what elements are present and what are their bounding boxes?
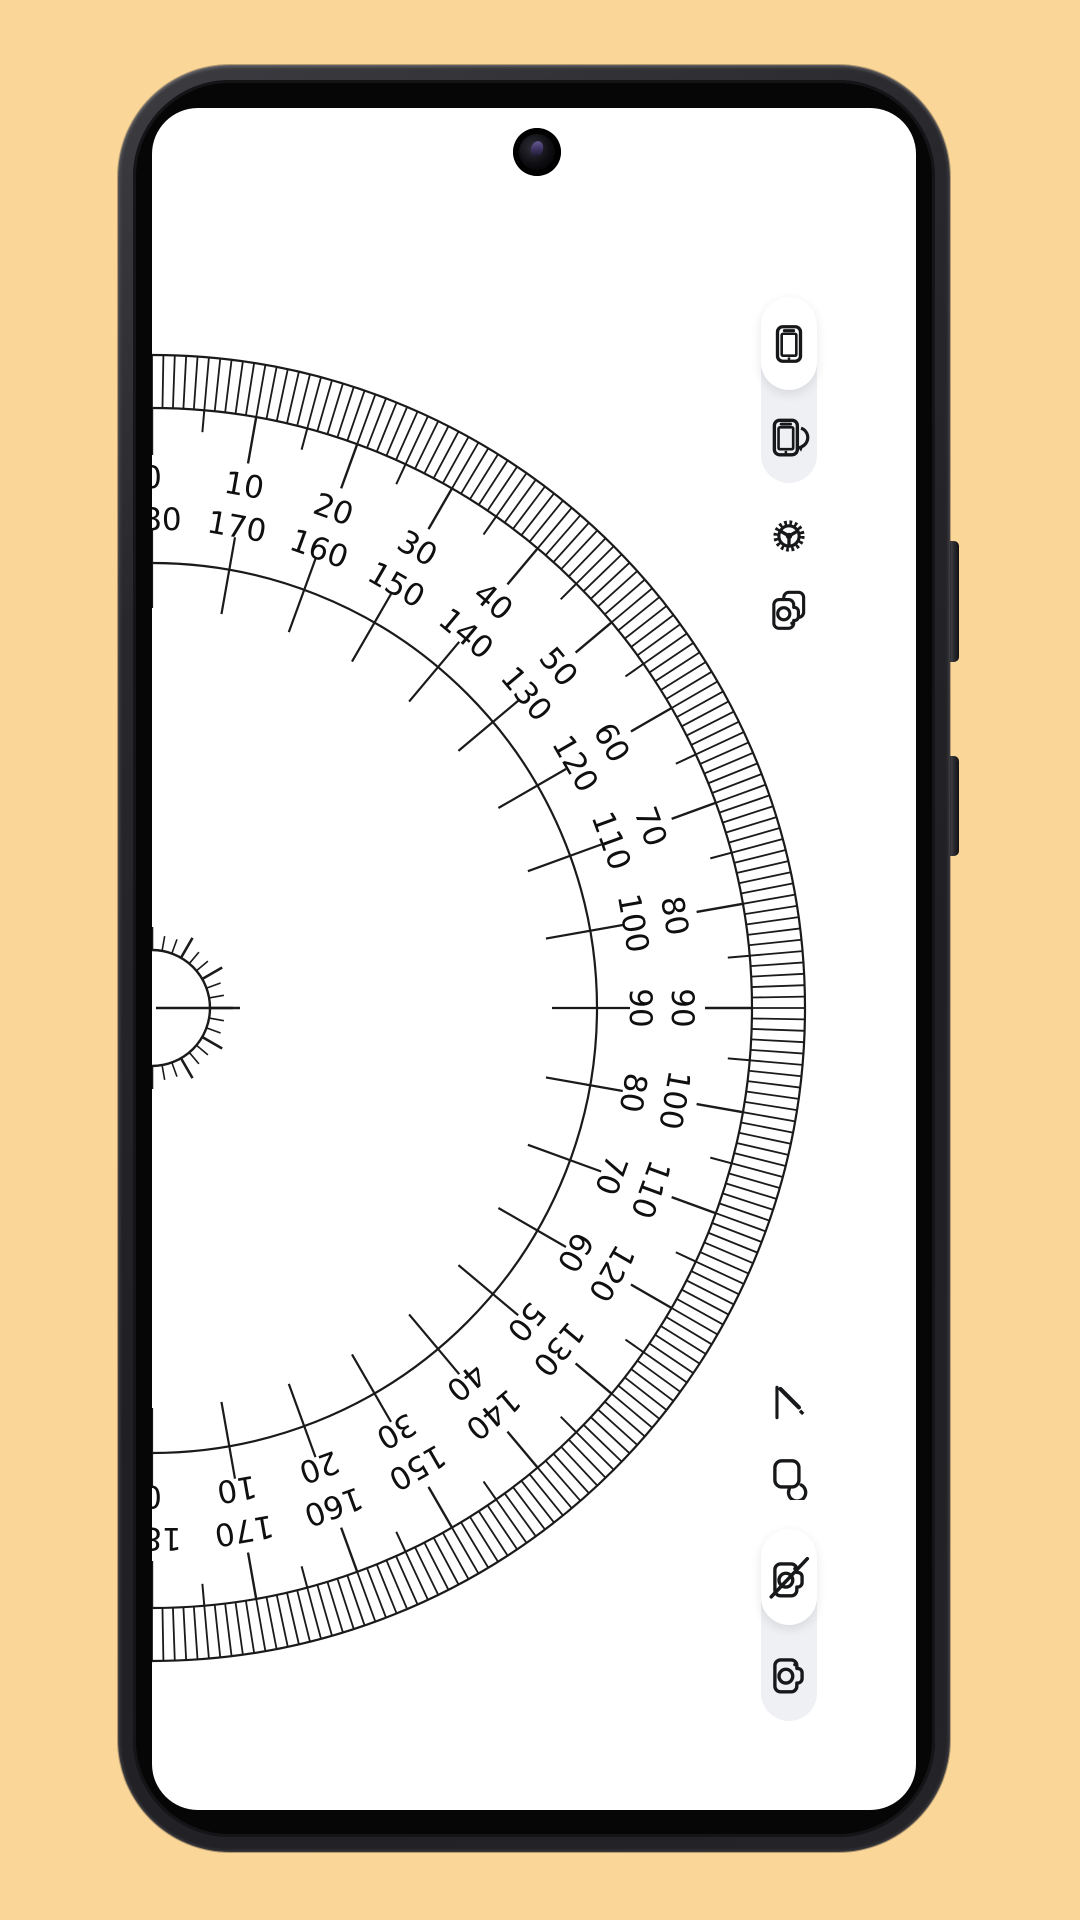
svg-text:70: 70 xyxy=(627,802,674,851)
settings-button[interactable] xyxy=(761,508,817,564)
svg-text:170: 170 xyxy=(205,504,270,550)
front-camera xyxy=(513,128,561,176)
svg-text:70: 70 xyxy=(587,1150,634,1199)
svg-text:180: 180 xyxy=(152,502,182,538)
camera-off-button[interactable] xyxy=(761,1529,817,1625)
svg-text:10: 10 xyxy=(214,1468,259,1510)
svg-text:10: 10 xyxy=(222,465,267,507)
camera-toggle-group xyxy=(761,1529,817,1721)
phone-frame: 0102030405060708090100110120130140150160… xyxy=(118,65,950,1852)
svg-text:80: 80 xyxy=(612,1070,654,1115)
orientation-rotate-button[interactable] xyxy=(761,390,817,483)
camera-lens-glint xyxy=(529,140,545,159)
phone-portrait-icon xyxy=(766,321,812,367)
camera-icon xyxy=(766,1650,812,1696)
app-screen: 0102030405060708090100110120130140150160… xyxy=(152,108,916,1810)
svg-text:170: 170 xyxy=(212,1507,277,1553)
svg-text:100: 100 xyxy=(610,891,656,956)
svg-text:180: 180 xyxy=(152,1520,182,1556)
camera-off-icon xyxy=(766,1554,812,1600)
svg-text:0: 0 xyxy=(152,1478,162,1514)
draw-line-button[interactable] xyxy=(761,1374,817,1430)
phone-rotate-icon xyxy=(766,414,812,460)
canvas-background: 0102030405060708090100110120130140150160… xyxy=(0,0,1080,1920)
draw-pen-icon xyxy=(766,1379,812,1425)
svg-text:20: 20 xyxy=(294,1443,343,1490)
svg-text:100: 100 xyxy=(651,1068,697,1133)
svg-text:90: 90 xyxy=(664,988,700,1027)
burst-copy-icon xyxy=(766,586,812,632)
burst-copy-button[interactable] xyxy=(761,581,817,637)
svg-text:80: 80 xyxy=(653,893,695,938)
camera-button[interactable] xyxy=(761,1625,817,1721)
shapes-icon xyxy=(766,1454,812,1500)
protractor-dial[interactable]: 0102030405060708090100110120130140150160… xyxy=(152,328,832,1688)
orientation-toggle-group xyxy=(761,297,817,483)
settings-gear-icon xyxy=(766,513,812,559)
svg-text:20: 20 xyxy=(309,486,358,533)
svg-text:0: 0 xyxy=(152,460,162,496)
shapes-button[interactable] xyxy=(761,1449,817,1505)
svg-text:90: 90 xyxy=(622,988,658,1027)
orientation-portrait-button[interactable] xyxy=(761,297,817,390)
